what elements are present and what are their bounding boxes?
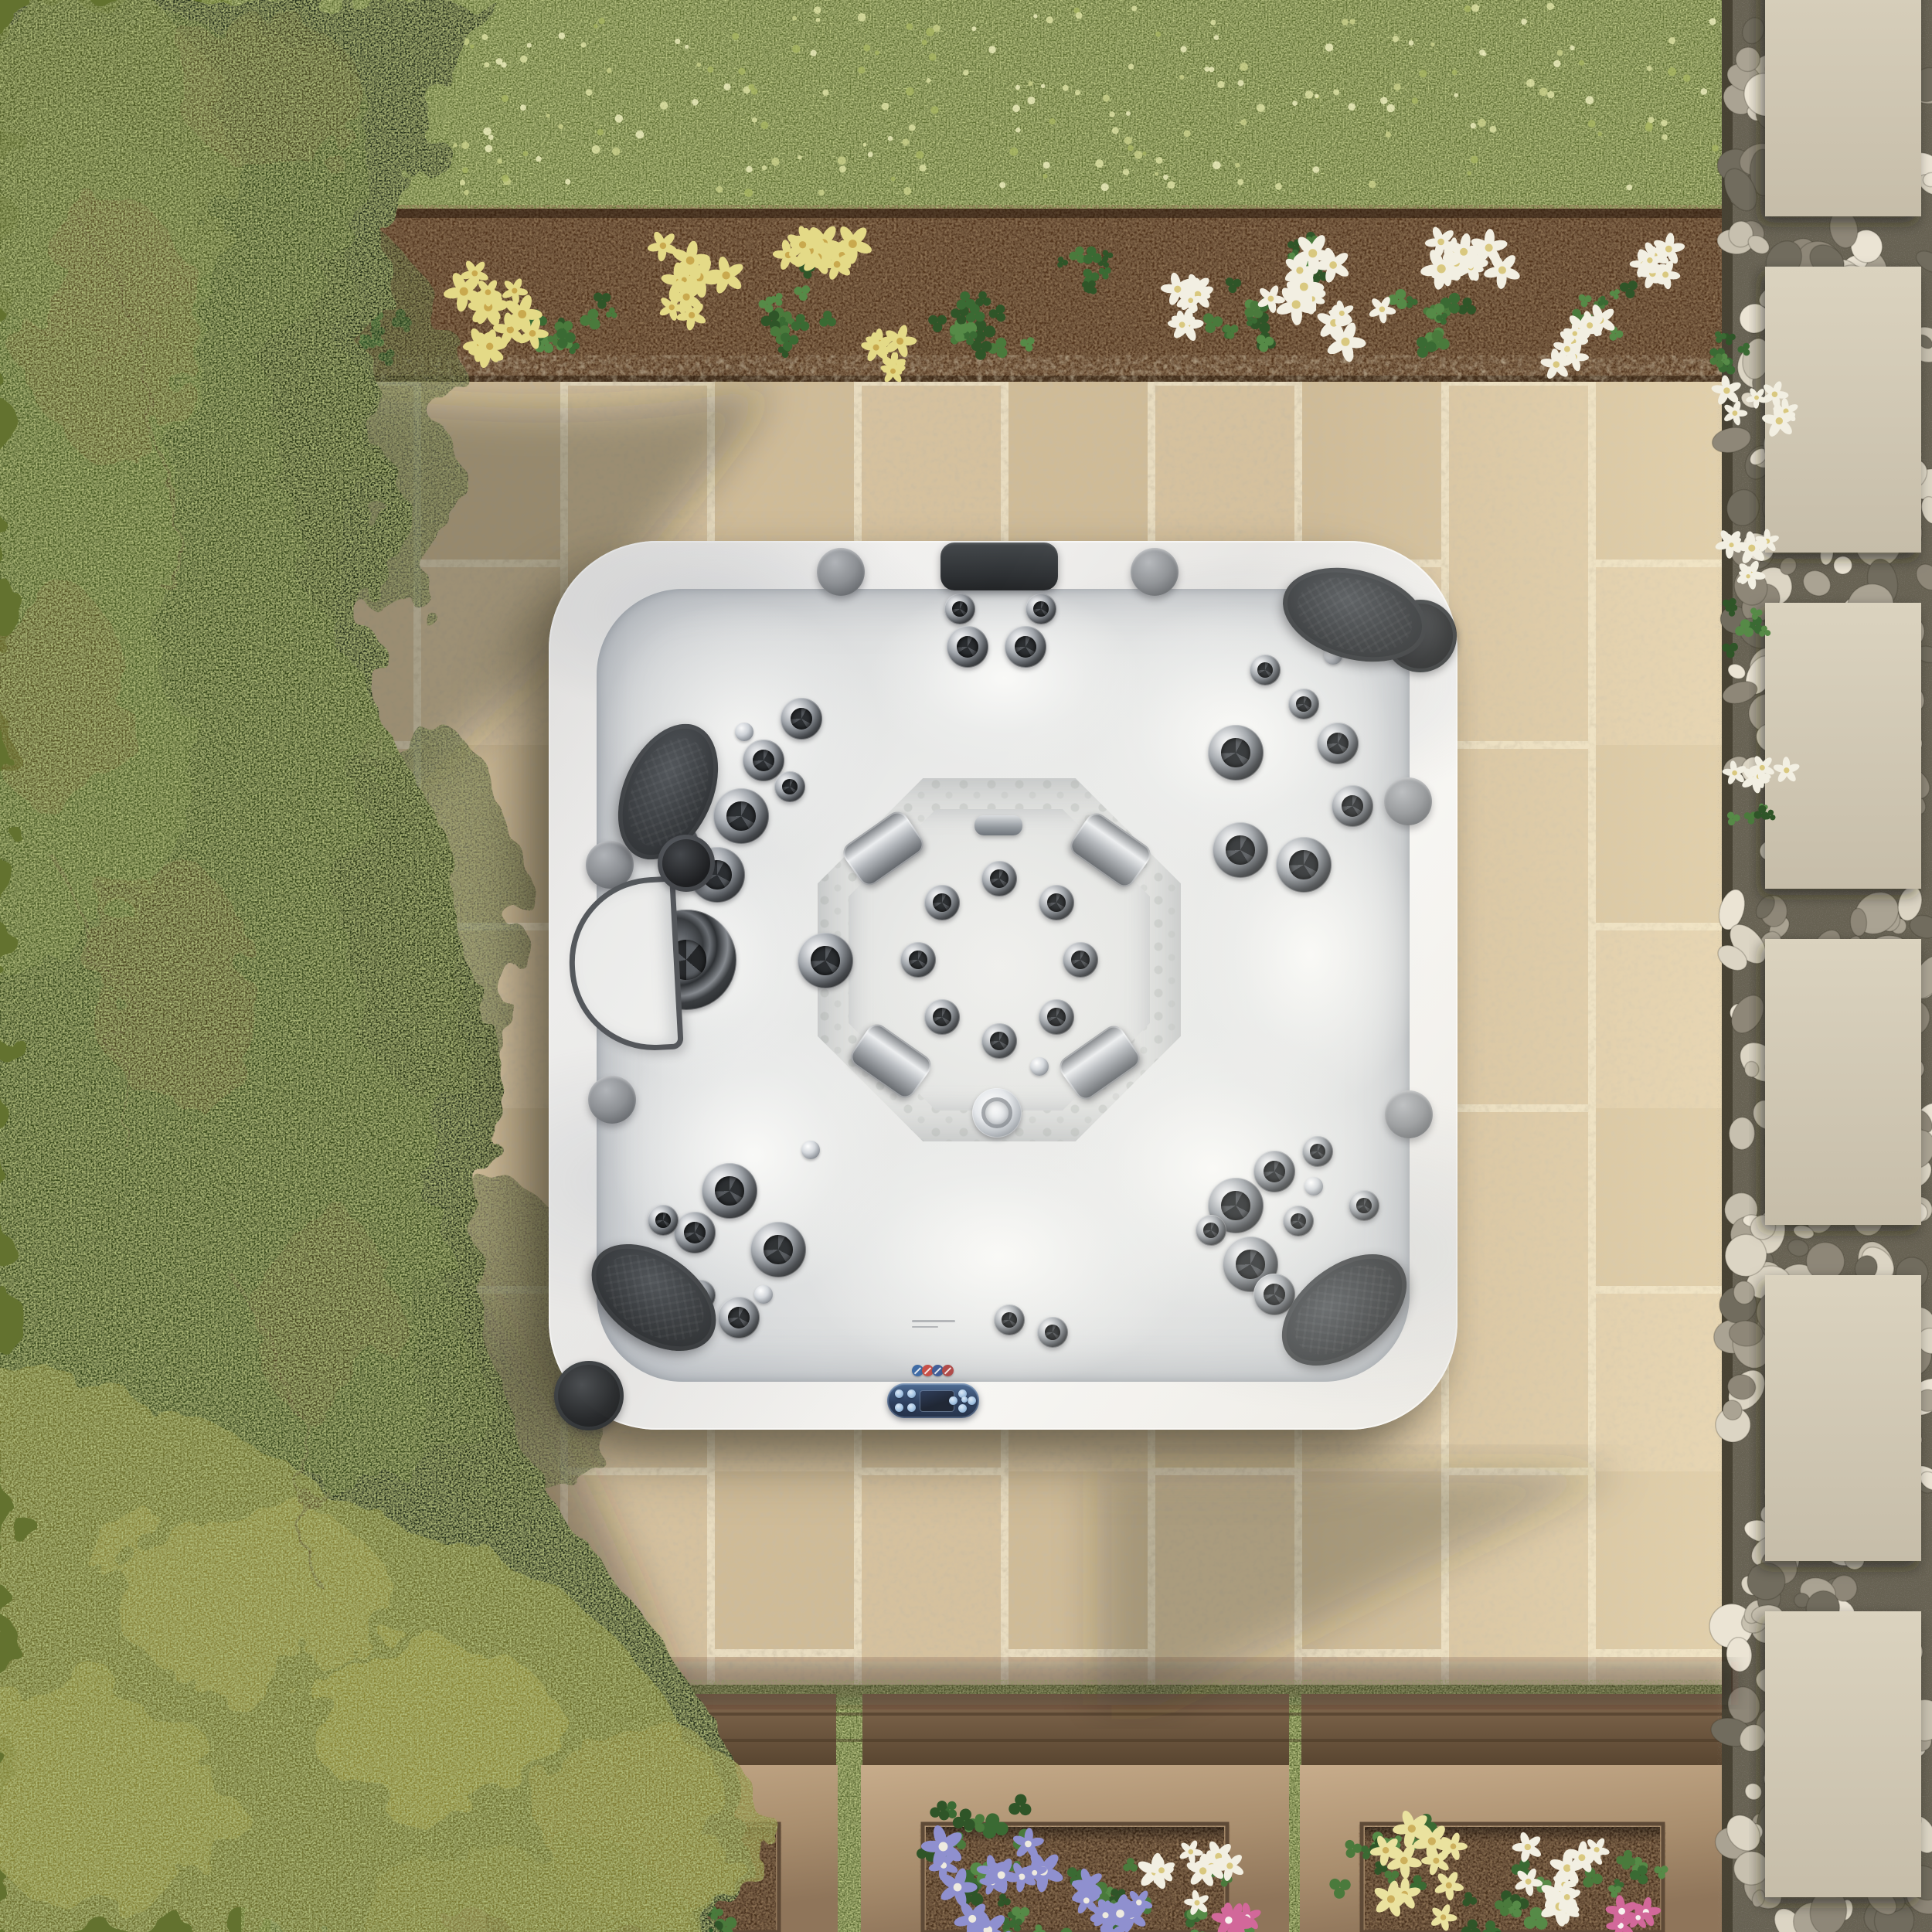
ring-jet [924, 885, 960, 920]
control-panel[interactable] [887, 1383, 979, 1418]
hydro-jet [702, 1163, 757, 1219]
diverter-valve [1131, 548, 1179, 596]
headrest-pad-top [940, 543, 1058, 590]
panel-button[interactable] [895, 1389, 903, 1398]
hydro-jet [1213, 822, 1268, 878]
stepping-pavers [1765, 0, 1926, 1932]
hydro-jet [1208, 725, 1264, 781]
corner-tray [565, 876, 684, 1054]
air-button [1030, 1057, 1049, 1076]
planter-rear-rim [1301, 1694, 1726, 1768]
air-button [735, 723, 753, 741]
air-button [754, 1285, 773, 1304]
ring-jet [924, 999, 960, 1035]
hydro-jet [1283, 1206, 1314, 1236]
backyard-scene [0, 0, 1932, 1932]
ring-jet [981, 861, 1017, 896]
hydro-jet [798, 933, 853, 988]
hydro-jet [674, 1212, 716, 1253]
panel-button[interactable] [907, 1403, 916, 1412]
hydro-jet [1253, 1151, 1295, 1192]
diverter-valve [817, 548, 865, 596]
diverter-valve [1384, 777, 1432, 825]
floor-light [972, 1088, 1022, 1138]
hydro-jet [1250, 655, 1281, 685]
hydro-jet [1288, 689, 1319, 719]
hot-tub [549, 541, 1458, 1430]
ring-jet [1039, 885, 1074, 920]
hydro-jet [1276, 837, 1332, 893]
hydro-jet [781, 698, 822, 740]
diverter-valve [588, 1076, 636, 1124]
hydro-jet [1302, 1136, 1333, 1167]
warning-icon [942, 1365, 954, 1376]
hydro-jet [648, 1205, 679, 1236]
panel-button[interactable] [968, 1396, 976, 1405]
panel-button[interactable] [949, 1396, 957, 1405]
panel-button[interactable] [907, 1389, 916, 1398]
ring-jet [1039, 999, 1074, 1035]
hydro-jet [774, 771, 805, 802]
hydro-jet [1317, 723, 1359, 764]
air-button [1304, 1177, 1323, 1196]
hydro-jet [1349, 1190, 1379, 1221]
cup-holder [658, 835, 715, 892]
hydro-jet [994, 1304, 1025, 1335]
panel-button[interactable] [958, 1404, 967, 1413]
hydro-jet [1005, 626, 1046, 668]
hydro-jet [718, 1297, 760, 1338]
diverter-valve [1385, 1090, 1433, 1138]
hydro-jet [1026, 594, 1056, 624]
panel-button[interactable] [961, 1396, 968, 1403]
hydro-jet [944, 594, 975, 624]
waterfall-scupper [975, 815, 1022, 835]
hydro-jet [713, 788, 769, 844]
etched-mark [912, 1320, 955, 1322]
planter-rear-rim [862, 1694, 1289, 1768]
etched-mark [912, 1326, 938, 1328]
ring-jet [1063, 942, 1098, 978]
hydro-jet [750, 1222, 806, 1277]
hydro-jet [1196, 1215, 1226, 1246]
panel-button[interactable] [895, 1403, 903, 1412]
gravel-path [1700, 0, 1932, 1932]
hydro-jet [1037, 1317, 1068, 1348]
ring-jet [981, 1023, 1017, 1059]
air-button [801, 1141, 820, 1159]
ring-jet [900, 942, 936, 978]
hydro-jet [1332, 785, 1373, 827]
corner-speaker-cap [554, 1361, 624, 1430]
hydro-jet [947, 626, 988, 668]
